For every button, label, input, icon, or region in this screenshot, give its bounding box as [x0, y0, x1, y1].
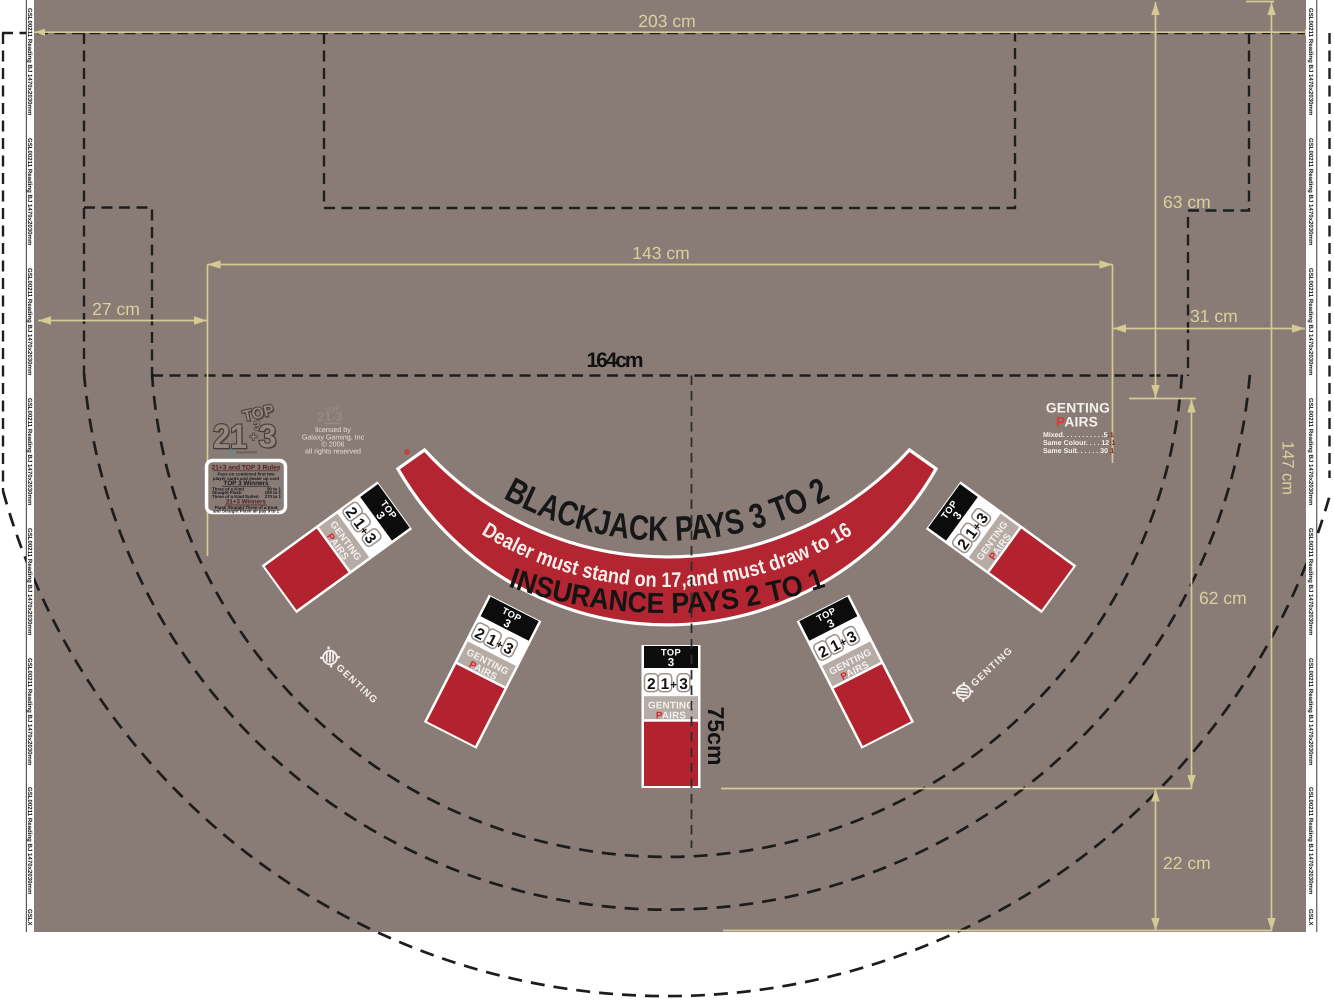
svg-text:Mixed. . . . . . . . . . .5:1: Mixed. . . . . . . . . . .5:1 [1043, 431, 1114, 439]
svg-text:GSL00211 Reading BJ 1470x2030m: GSL00211 Reading BJ 1470x2030mm [26, 8, 33, 116]
svg-text:203 cm: 203 cm [638, 11, 695, 31]
svg-text:GSL00211 Reading BJ 1470x2030m: GSL00211 Reading BJ 1470x2030mm [1307, 138, 1314, 246]
svg-text:21+3: 21+3 [317, 409, 343, 424]
svg-text:GSL00211 Reading BJ 1470x2030m: GSL00211 Reading BJ 1470x2030mm [26, 398, 33, 506]
svg-text:GSLX: GSLX [1307, 909, 1314, 927]
svg-text:GSL00211 Reading BJ 1470x2030m: GSL00211 Reading BJ 1470x2030mm [26, 268, 33, 376]
svg-text:GSL00211 Reading BJ 1470x2030m: GSL00211 Reading BJ 1470x2030mm [26, 138, 33, 246]
svg-text:31 cm: 31 cm [1190, 306, 1238, 326]
svg-text:270 to 1: 270 to 1 [265, 494, 282, 499]
svg-text:GSLX: GSLX [26, 909, 33, 927]
svg-text:and Straight Flush all pay 9 t: and Straight Flush all pay 9 to 1 [213, 509, 280, 514]
svg-text:GSL00211 Reading BJ 1470x2030m: GSL00211 Reading BJ 1470x2030mm [1307, 8, 1314, 116]
svg-text:62 cm: 62 cm [1199, 588, 1247, 608]
svg-text:GSL00211 Reading BJ 1470x2030m: GSL00211 Reading BJ 1470x2030mm [1307, 787, 1314, 895]
svg-text:164cm: 164cm [587, 349, 644, 372]
svg-text:143 cm: 143 cm [632, 243, 689, 263]
svg-text:147 cm: 147 cm [1279, 441, 1297, 495]
svg-text:all rights reserved: all rights reserved [305, 448, 361, 456]
svg-text:63 cm: 63 cm [1163, 192, 1211, 212]
svg-text:+: + [250, 429, 258, 444]
svg-text:GSL00211 Reading BJ 1470x2030m: GSL00211 Reading BJ 1470x2030mm [26, 787, 33, 895]
svg-text:75cm: 75cm [703, 707, 729, 766]
svg-text:GENTING: GENTING [1046, 401, 1110, 416]
svg-text:21+3 and TOP 3 Rules: 21+3 and TOP 3 Rules [212, 464, 281, 471]
svg-text:27 cm: 27 cm [92, 299, 140, 319]
svg-text:GSL00211 Reading BJ 1470x2030m: GSL00211 Reading BJ 1470x2030mm [1307, 528, 1314, 636]
svg-text:Three of a Kind Suited: Three of a Kind Suited [212, 494, 259, 499]
svg-text:GSL00211 Reading BJ 1470x2030m: GSL00211 Reading BJ 1470x2030mm [1307, 398, 1314, 506]
svg-text:GSL00211 Reading BJ 1470x2030m: GSL00211 Reading BJ 1470x2030mm [26, 658, 33, 766]
svg-text:Same Colour. . . . 12:1: Same Colour. . . . 12:1 [1043, 439, 1115, 447]
svg-text:Same Suit. . . . . . 30:1: Same Suit. . . . . . 30:1 [1043, 447, 1114, 455]
svg-text:3: 3 [259, 418, 277, 454]
svg-text:GSL00211 Reading BJ 1470x2030m: GSL00211 Reading BJ 1470x2030mm [1307, 658, 1314, 766]
svg-text:GSL00211 Reading BJ 1470x2030m: GSL00211 Reading BJ 1470x2030mm [1307, 268, 1314, 376]
svg-text:22 cm: 22 cm [1163, 853, 1211, 873]
svg-text:PAIRS: PAIRS [1056, 415, 1098, 430]
svg-text:GSL00211 Reading BJ 1470x2030m: GSL00211 Reading BJ 1470x2030mm [26, 528, 33, 636]
